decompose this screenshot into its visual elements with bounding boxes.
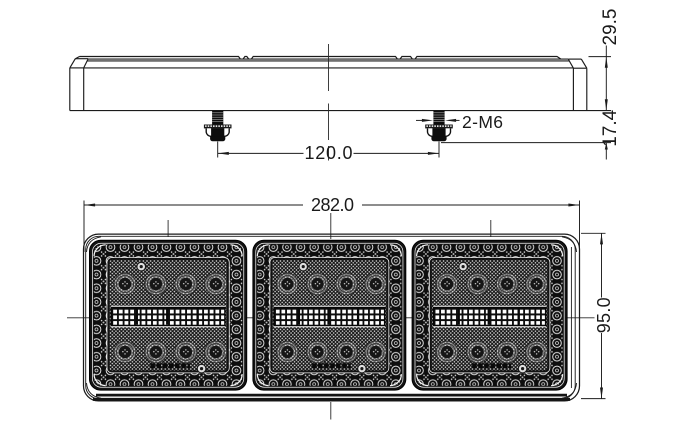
svg-text:120.0: 120.0 bbox=[305, 143, 353, 163]
svg-text:29.5: 29.5 bbox=[600, 9, 621, 46]
svg-text:2-M6: 2-M6 bbox=[462, 112, 503, 132]
svg-text:95.0: 95.0 bbox=[594, 297, 614, 333]
svg-text:17.4: 17.4 bbox=[600, 109, 621, 146]
svg-text:282.0: 282.0 bbox=[311, 195, 354, 215]
